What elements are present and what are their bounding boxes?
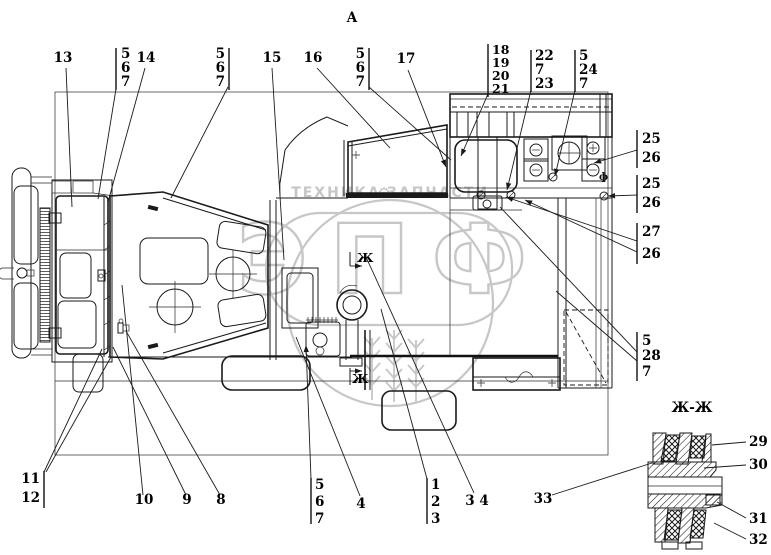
svg-text:26: 26 [642,195,661,211]
svg-text:13: 13 [54,50,73,66]
callout-33: 33 [534,491,553,507]
callout-31: 31 [749,511,768,527]
svg-text:2: 2 [431,494,440,510]
callout-27-26: 27 26 [637,223,661,264]
section-view-title: Ж-Ж [671,400,712,416]
callout-25-26-b: 25 26 [637,175,661,213]
side-step [222,356,310,390]
callout-25-26-a: 25 26 [637,130,661,168]
callout-8: 8 [216,492,225,508]
callout-13: 13 [54,50,73,66]
assembly-drawing: ЭПФ ТЕХНИКА ⚙ ЗАПЧАСТИ [0,0,771,555]
section-view-zh-zh: Ж-Ж [648,400,722,549]
callout-9: 9 [182,492,191,508]
svg-text:12: 12 [21,490,40,506]
svg-text:14: 14 [137,50,156,66]
svg-text:6: 6 [315,494,324,510]
section-marker-letter: Ж [352,371,369,386]
svg-text:16: 16 [304,50,323,66]
callout-4: 4 [356,496,365,512]
svg-text:33: 33 [534,491,553,507]
section-marker-letter: Ж [357,250,374,265]
callout-5-6-7-c: 5 6 7 [356,46,369,90]
svg-text:3 4: 3 4 [465,493,489,509]
callout-5-28-7: 5 28 7 [637,332,661,381]
svg-text:7: 7 [216,74,225,90]
callout-30: 30 [749,457,768,473]
svg-text:30: 30 [749,457,768,473]
callout-5-6-7-d: 5 6 7 [311,477,324,527]
technical-drawing-page: ЭПФ ТЕХНИКА ⚙ ЗАПЧАСТИ [0,0,771,555]
callout-11-12: 11 12 [21,471,44,508]
svg-text:28: 28 [642,348,661,364]
svg-text:27: 27 [642,224,661,240]
svg-text:23: 23 [535,76,554,92]
watermark: ЭПФ ТЕХНИКА ⚙ ЗАПЧАСТИ [237,184,549,406]
svg-text:10: 10 [135,492,154,508]
callout-32: 32 [749,532,768,548]
callout-5-6-7-b: 5 6 7 [216,46,229,90]
svg-text:25: 25 [642,131,661,147]
callout-18-19-20-21: 18 19 20 21 [488,42,510,97]
callout-17: 17 [397,51,416,67]
callout-15: 15 [263,50,282,66]
valve-fitting [118,319,129,333]
svg-text:31: 31 [749,511,768,527]
svg-text:7: 7 [121,74,130,90]
callout-22-7-23: 22 7 23 [531,48,554,92]
callout-5-6-7-a: 5 6 7 [116,46,130,90]
svg-text:5: 5 [315,477,324,493]
callout-10: 10 [135,492,154,508]
svg-text:7: 7 [356,74,365,90]
svg-text:11: 11 [21,471,40,487]
retainer-washer [706,495,720,505]
rear-step [382,358,560,430]
svg-text:21: 21 [492,81,509,96]
svg-text:7: 7 [315,511,324,527]
callout-16: 16 [304,50,323,66]
svg-text:9: 9 [182,492,191,508]
section-cut-marker-bottom: Ж [350,368,369,386]
svg-text:32: 32 [749,532,768,548]
svg-text:3: 3 [431,511,440,527]
upper-rubber-block [653,433,711,464]
svg-text:17: 17 [397,51,416,67]
svg-text:26: 26 [642,150,661,166]
svg-text:29: 29 [749,434,768,450]
svg-text:7: 7 [642,364,651,380]
svg-text:25: 25 [642,176,661,192]
diameter-symbol: ф [599,172,608,183]
svg-text:4: 4 [356,496,365,512]
callout-1-2-3: 1 2 3 [427,477,440,527]
radiator-core [40,208,50,342]
svg-text:8: 8 [216,492,225,508]
svg-text:26: 26 [642,246,661,262]
svg-text:1: 1 [431,477,440,493]
svg-text:5: 5 [642,333,651,349]
callout-14: 14 [137,50,156,66]
svg-text:15: 15 [263,50,282,66]
callout-3-4: 3 4 [465,493,489,509]
callout-5-24-7: 5 24 7 [575,48,598,92]
middle-spacer [648,477,722,494]
svg-text:7: 7 [579,76,588,92]
upper-plate [648,462,716,477]
lower-rubber-block [655,508,706,549]
view-label: А [347,10,358,26]
callout-29: 29 [749,434,768,450]
